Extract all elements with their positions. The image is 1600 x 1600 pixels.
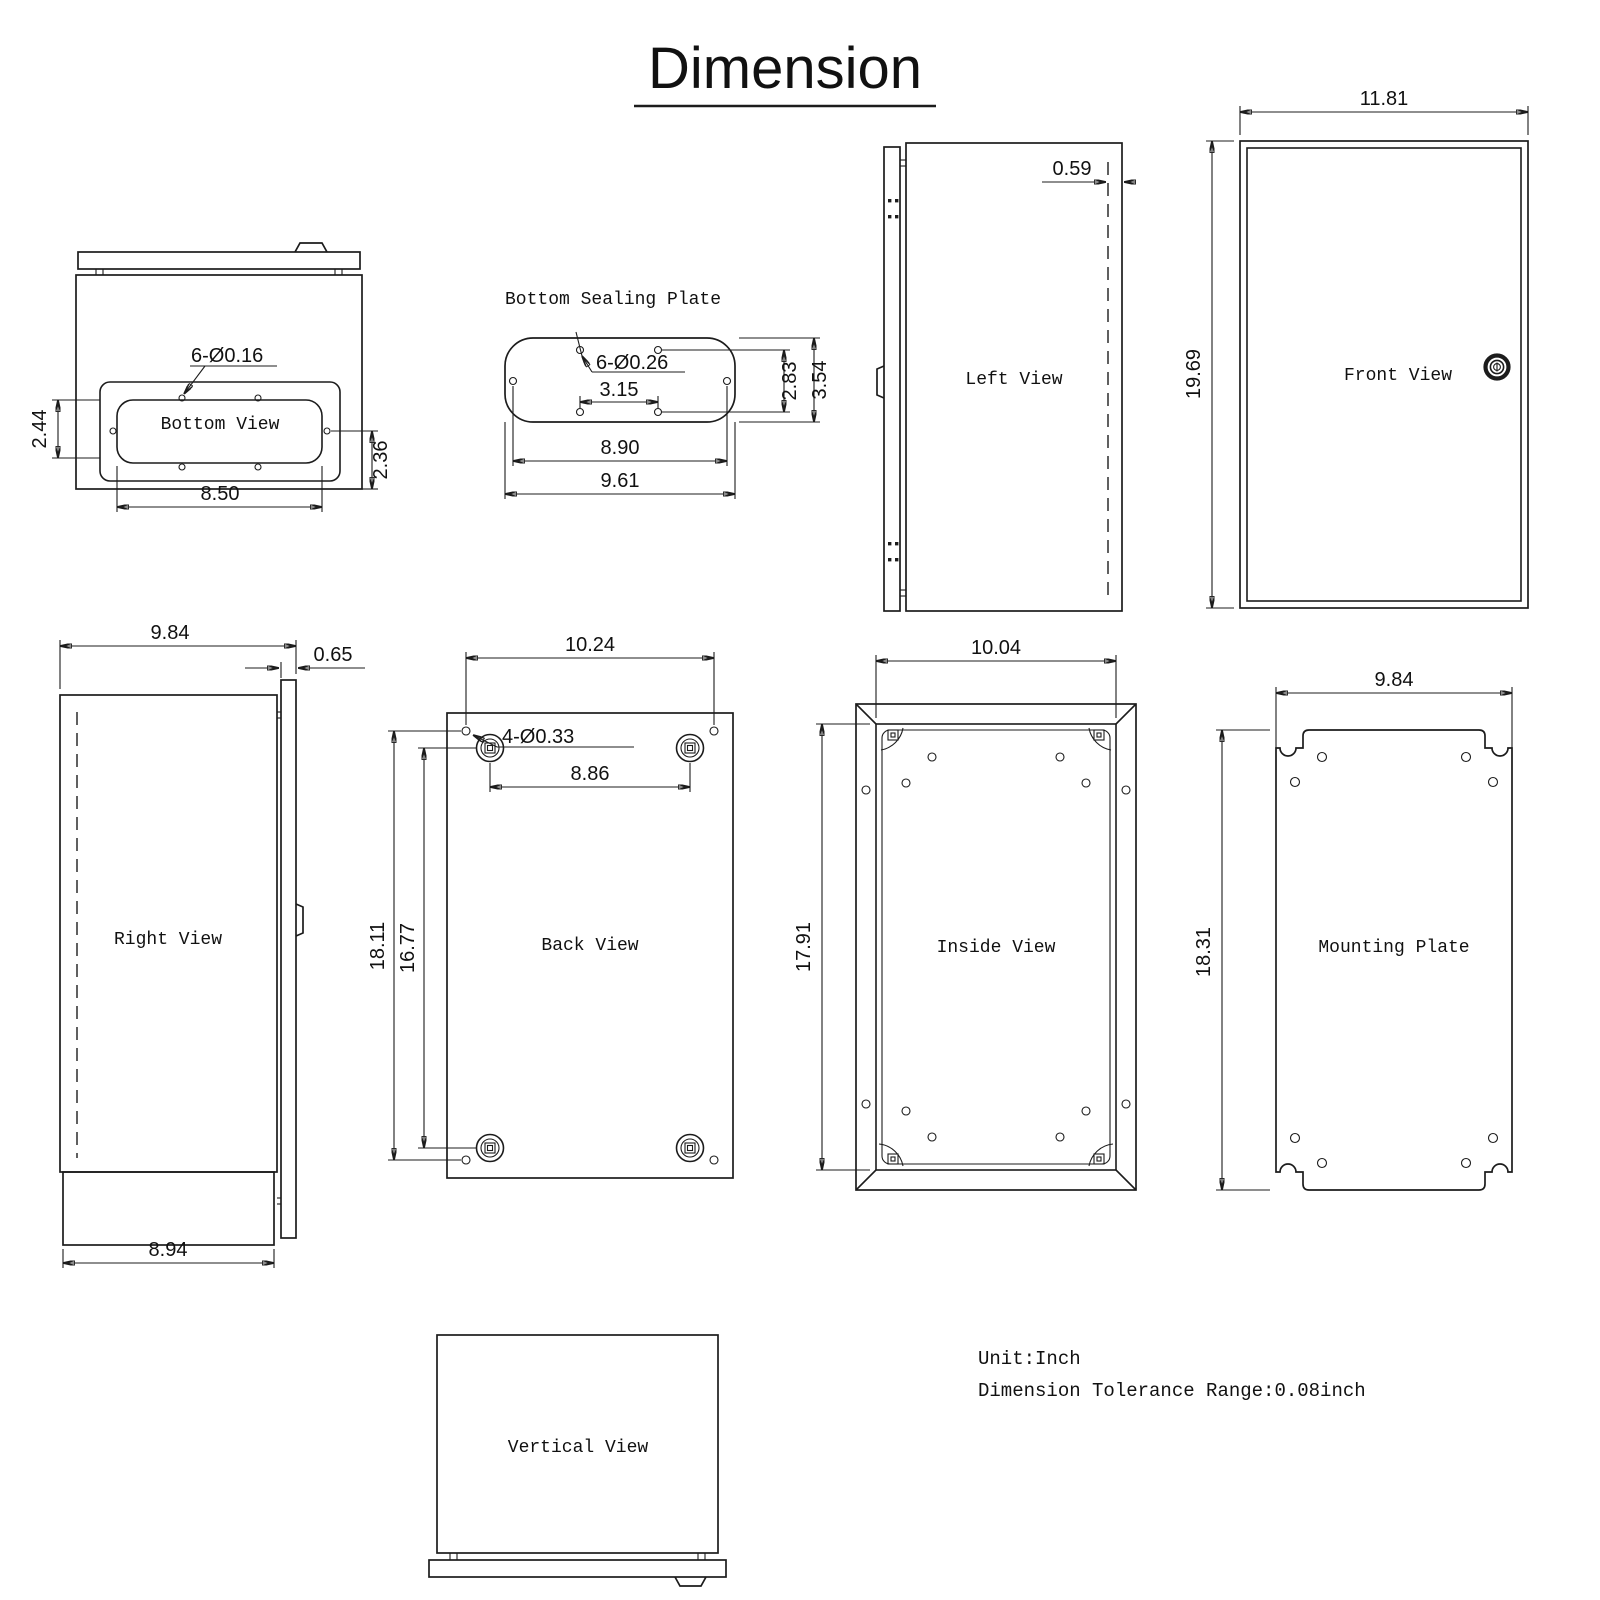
- back-view-label: Back View: [541, 936, 638, 956]
- note-tolerance: Dimension Tolerance Range:0.08inch: [978, 1380, 1366, 1402]
- bottom-sealing-plate-label: Bottom Sealing Plate: [505, 290, 721, 310]
- back-view-dim-boss-height: 16.77: [397, 923, 419, 973]
- page-title: Dimension: [648, 36, 922, 101]
- sealing-plate-dim-hole-span: 8.90: [601, 437, 640, 459]
- sealing-plate-hole-callout: 6-Ø0.26: [596, 352, 668, 374]
- bottom-view-dim-width: 8.50: [201, 483, 240, 505]
- right-view-dim-door: 0.65: [314, 644, 353, 666]
- dimension-drawing-sheet: Dimension Bottom View 6-Ø0.16 2.44 2.36: [0, 0, 1600, 1600]
- mounting-plate-drawing: Mounting Plate 9.84 18.31: [1193, 669, 1512, 1190]
- mounting-plate-dim-width: 9.84: [1375, 669, 1414, 691]
- vertical-view-label: Vertical View: [508, 1438, 649, 1458]
- front-view-dim-width: 11.81: [1360, 88, 1409, 110]
- sealing-plate-dim-plate-height: 3.54: [809, 361, 831, 400]
- back-view-hole-callout: 4-Ø0.33: [502, 726, 574, 748]
- drawing-canvas: Dimension Bottom View 6-Ø0.16 2.44 2.36: [0, 0, 1600, 1600]
- bottom-view-hole-callout: 6-Ø0.16: [191, 345, 263, 367]
- door-latch-bump: [296, 904, 303, 936]
- inside-view-dim-height: 17.91: [793, 922, 815, 972]
- inside-view-dim-width: 10.04: [971, 637, 1021, 659]
- inside-view-drawing: Inside View 10.04 17.91: [793, 637, 1136, 1190]
- back-view-drawing: Back View 10.24 4-Ø0.33 8.86 18.11 16.77: [367, 634, 733, 1178]
- bottom-view-dim-offset: 2.36: [370, 441, 392, 480]
- bottom-view-label: Bottom View: [161, 415, 280, 435]
- front-view-dim-height: 19.69: [1183, 349, 1205, 399]
- left-view-label: Left View: [965, 370, 1062, 390]
- left-view-drawing: Left View 0.59: [877, 143, 1136, 611]
- right-view-label: Right View: [114, 930, 222, 950]
- back-view-dim-hole-width: 10.24: [565, 634, 615, 656]
- front-view-label: Front View: [1344, 366, 1452, 386]
- door-latch-bump: [877, 366, 884, 398]
- back-view-dim-hole-height: 18.11: [367, 922, 389, 971]
- cam-lock-icon: [1486, 356, 1509, 379]
- bottom-view-dim-pocket-height: 2.44: [29, 410, 51, 449]
- note-unit: Unit:Inch: [978, 1348, 1081, 1370]
- bottom-view-drawing: Bottom View 6-Ø0.16 2.44 2.36 8.50: [29, 243, 392, 512]
- mounting-plate-label: Mounting Plate: [1318, 938, 1469, 958]
- mounting-plate-dim-height: 18.31: [1193, 927, 1215, 977]
- vertical-view-drawing: Vertical View: [429, 1335, 726, 1586]
- sealing-plate-dim-plate-width: 9.61: [601, 470, 640, 492]
- front-view-drawing: 11.81 19.69 Front View: [1183, 88, 1528, 608]
- bottom-sealing-plate-drawing: Bottom Sealing Plate 6-Ø0.26 3.15 8.90 9…: [505, 290, 831, 499]
- back-view-dim-boss-width: 8.86: [571, 763, 610, 785]
- notes-block: Unit:Inch Dimension Tolerance Range:0.08…: [978, 1348, 1366, 1402]
- title-block: Dimension: [634, 36, 936, 106]
- right-view-dim-depth: 9.84: [151, 622, 190, 644]
- inside-view-label: Inside View: [937, 938, 1056, 958]
- right-view-dim-body-depth: 8.94: [149, 1239, 188, 1261]
- sealing-plate-dim-hole-rows: 2.83: [779, 362, 801, 401]
- left-view-dim-door-inset: 0.59: [1053, 158, 1092, 180]
- right-view-drawing: Right View 9.84 0.65 8.94: [60, 622, 365, 1268]
- sealing-plate-dim-center-holes: 3.15: [600, 379, 639, 401]
